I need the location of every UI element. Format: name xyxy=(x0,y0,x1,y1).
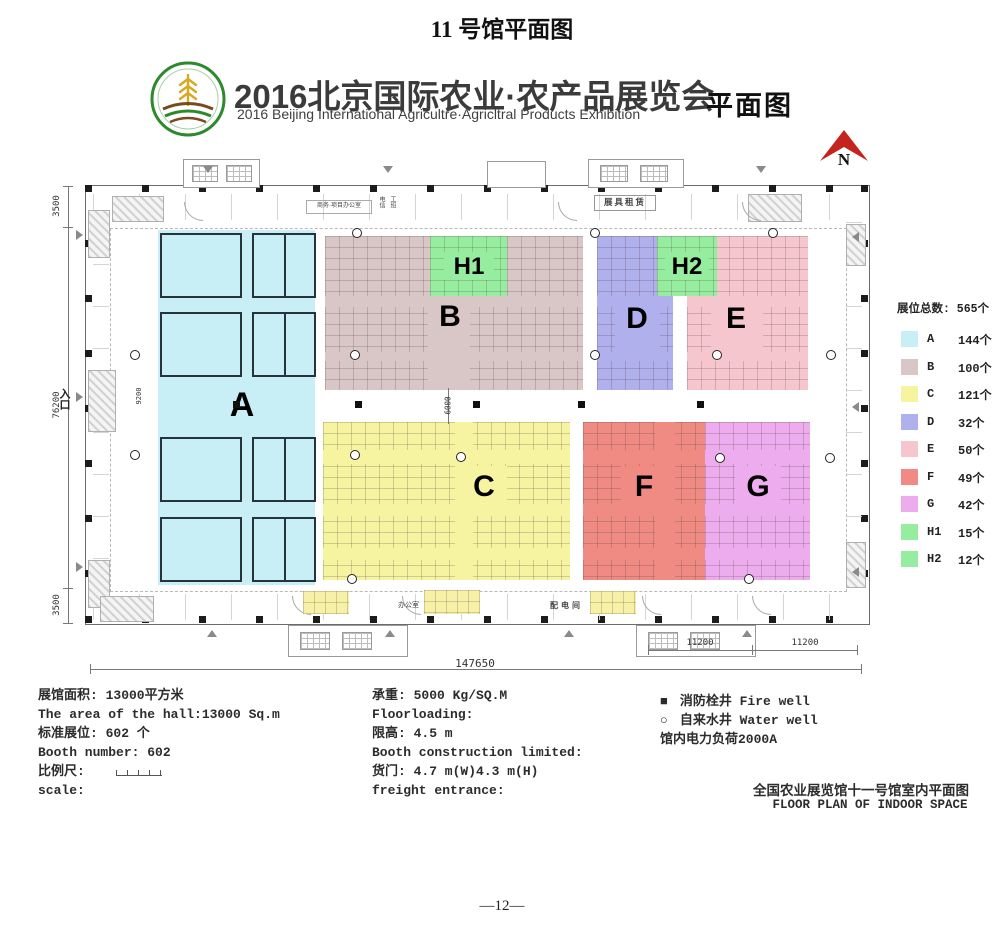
water-well-icon xyxy=(712,350,722,360)
stair-block-right-upper xyxy=(846,224,866,266)
legend-title: 展位总数: 565个 xyxy=(897,300,989,316)
legend-count: 121个 xyxy=(958,386,992,403)
water-well-symbol: ○ xyxy=(660,713,668,728)
door-marker-top-3-icon xyxy=(756,166,766,173)
legend-swatch xyxy=(901,414,918,430)
dim-tick xyxy=(63,588,73,589)
legend-swatch xyxy=(901,551,918,567)
dim-entry-bay: 9200 xyxy=(135,379,143,413)
water-well-icon xyxy=(350,350,360,360)
dim-tick xyxy=(752,645,753,655)
zone-H1-label: H1 xyxy=(449,255,489,279)
room-workroom-label: 工班 xyxy=(388,196,397,208)
dim-tick xyxy=(857,645,858,655)
zone-H2-label: H2 xyxy=(667,255,707,279)
entrance-label: 入口 xyxy=(56,388,72,410)
bottom-wall-booths-2 xyxy=(424,590,480,614)
water-well-icon xyxy=(130,450,140,460)
room-booth-rental-label: 展具租赁 xyxy=(594,195,656,211)
water-well-icon xyxy=(768,228,778,238)
water-well-icon xyxy=(715,453,725,463)
header-plan-label: 平面图 xyxy=(706,84,793,123)
zone-A-label: A xyxy=(222,388,262,422)
zone-B-label: B xyxy=(430,302,470,332)
exhibition-logo xyxy=(149,60,227,138)
zone-A-island xyxy=(252,312,316,377)
legend-count: 12个 xyxy=(958,551,984,568)
zone-C-label: C xyxy=(466,472,502,502)
zone-G: G xyxy=(705,422,810,580)
stair-block-bottomleft xyxy=(100,596,154,622)
dim-left-bottom: 3500 xyxy=(52,583,62,627)
water-well-icon xyxy=(744,574,754,584)
top-bay-2 xyxy=(487,161,546,188)
page-title: 11 号馆平面图 xyxy=(352,10,652,44)
zone-A-island xyxy=(160,437,242,502)
fire-well-icon xyxy=(355,401,362,408)
door-marker-right-2-icon xyxy=(852,402,859,412)
info-line: scale: xyxy=(38,781,280,800)
info-column-3: ■消防栓井 Fire well ○自来水井 Water well 馆内电力负荷2… xyxy=(660,692,818,749)
fire-well-icon xyxy=(697,401,704,408)
info-line: freight entrance: xyxy=(372,781,583,800)
info-line: Booth construction limited: xyxy=(372,743,583,762)
room-power-label: 配电间 xyxy=(550,600,583,611)
info-line: 展馆面积: 13000平方米 xyxy=(38,686,280,705)
zone-A-island xyxy=(252,233,316,298)
top-bay-3-grid xyxy=(600,165,628,182)
water-well-icon xyxy=(456,452,466,462)
legend-item: H1 15个 xyxy=(901,523,984,541)
legend-item: A 144个 xyxy=(901,330,992,348)
door-marker-top-1-icon xyxy=(203,166,213,173)
legend-count: 50个 xyxy=(958,441,984,458)
legend-count: 144个 xyxy=(958,331,992,348)
legend-item: D 32个 xyxy=(901,413,984,431)
room-telecom-label: 电信 xyxy=(377,196,386,208)
water-well-icon xyxy=(350,450,360,460)
dim-bay2: 11200 xyxy=(770,638,840,648)
legend-count: 32个 xyxy=(958,414,984,431)
legend-swatch xyxy=(901,331,918,347)
zone-A-island xyxy=(160,517,242,582)
scale-bar xyxy=(116,766,162,776)
dim-tick xyxy=(63,623,73,624)
legend-zone: E xyxy=(927,442,949,456)
door-marker-right-1-icon xyxy=(852,232,859,242)
zone-F-label: F xyxy=(627,472,661,502)
water-well-icon xyxy=(590,228,600,238)
legend-swatch xyxy=(901,524,918,540)
legend-swatch xyxy=(901,496,918,512)
zone-G-label: G xyxy=(741,472,775,502)
dim-tick xyxy=(861,664,862,674)
water-well-icon xyxy=(130,350,140,360)
power-note: 馆内电力负荷2000A xyxy=(660,730,818,749)
door-marker-bottom-2-icon xyxy=(385,630,395,637)
info-line: The area of the hall:13000 Sq.m xyxy=(38,705,280,724)
legend-count: 49个 xyxy=(958,469,984,486)
legend-item: E 50个 xyxy=(901,440,984,458)
legend-swatch xyxy=(901,469,918,485)
door-marker-left-1-icon xyxy=(76,230,83,240)
footer-title-cn: 全国农业展览馆十一号馆室内平面图 xyxy=(753,779,969,799)
legend-item: F 49个 xyxy=(901,468,984,486)
legend-swatch xyxy=(901,441,918,457)
legend-item: G 42个 xyxy=(901,495,984,513)
info-line: Floorloading: xyxy=(372,705,583,724)
legend-item: H2 12个 xyxy=(901,550,984,568)
info-line: 承重: 5000 Kg/SQ.M xyxy=(372,686,583,705)
room-office-label: 办公室 xyxy=(398,600,419,610)
legend-zone: G xyxy=(927,497,949,511)
zone-C: C xyxy=(323,422,570,580)
zone-A-island xyxy=(252,517,316,582)
room-office-suite-label: 商务·项目办公室 xyxy=(306,200,372,214)
dim-center-aisle: 6000 xyxy=(444,391,453,421)
page-number: —12— xyxy=(437,898,567,915)
floor-plan-page: 11 号馆平面图 2016北京国际农业·农产品展览会 2016 Beijing … xyxy=(0,0,1005,934)
entrance-vestibule xyxy=(88,370,116,432)
fire-well-label: 消防栓井 Fire well xyxy=(680,694,810,709)
fire-well-icon xyxy=(578,401,585,408)
legend-zone: C xyxy=(927,387,949,401)
dim-line-bays xyxy=(648,650,858,651)
info-column-1: 展馆面积: 13000平方米 The area of the hall:1300… xyxy=(38,686,280,800)
water-well-icon xyxy=(826,350,836,360)
legend-zone: H1 xyxy=(927,525,949,539)
fire-well-legend: ■消防栓井 Fire well xyxy=(660,692,818,711)
dim-tick xyxy=(63,186,73,187)
zone-E-label: E xyxy=(718,304,754,334)
stair-block-left-upper xyxy=(88,210,110,258)
north-arrow: N xyxy=(818,128,870,174)
legend-count: 42个 xyxy=(958,496,984,513)
water-well-label: 自来水井 Water well xyxy=(680,713,818,728)
zone-H1: H1 xyxy=(430,236,507,296)
door-marker-right-3-icon xyxy=(852,567,859,577)
bottom-wall-booths-3 xyxy=(590,591,636,614)
door-marker-left-3-icon xyxy=(76,562,83,572)
legend-count: 15个 xyxy=(958,524,984,541)
info-line: 标准展位: 602 个 xyxy=(38,724,280,743)
logo-wheat-icon xyxy=(149,60,227,138)
dim-tick xyxy=(90,664,91,674)
zone-D-label: D xyxy=(619,304,655,334)
info-column-2: 承重: 5000 Kg/SQ.M Floorloading: 限高: 4.5 m… xyxy=(372,686,583,800)
dim-bay1: 11200 xyxy=(665,638,735,648)
legend-item: B 100个 xyxy=(901,358,992,376)
legend-item: C 121个 xyxy=(901,385,992,403)
legend-zone: F xyxy=(927,470,949,484)
legend-swatch xyxy=(901,359,918,375)
fire-well-icon xyxy=(473,401,480,408)
zone-A-island xyxy=(160,233,242,298)
header-title-en: 2016 Beijing International Agricultre·Ag… xyxy=(237,106,640,122)
zone-H2: H2 xyxy=(657,236,717,296)
water-well-icon xyxy=(590,350,600,360)
legend-swatch xyxy=(901,386,918,402)
door-marker-bottom-3-icon xyxy=(564,630,574,637)
info-line: Booth number: 602 xyxy=(38,743,280,762)
water-well-legend: ○自来水井 Water well xyxy=(660,711,818,730)
door-marker-bottom-4-icon xyxy=(742,630,752,637)
dim-tick xyxy=(63,227,73,228)
legend-count: 100个 xyxy=(958,359,992,376)
top-bay-3-grid2 xyxy=(640,165,668,182)
stair-block-topleft xyxy=(112,196,164,222)
legend-zone: H2 xyxy=(927,552,949,566)
door-marker-left-2-icon xyxy=(76,392,83,402)
dim-left-top: 3500 xyxy=(52,184,62,228)
dim-tick xyxy=(648,645,649,655)
door-marker-top-2-icon xyxy=(383,166,393,173)
legend-zone: D xyxy=(927,415,949,429)
legend-zone: B xyxy=(927,360,949,374)
scale-bar-ticks xyxy=(116,770,162,775)
top-bay-1-grid2 xyxy=(226,165,252,182)
stair-block-right-lower xyxy=(846,542,866,588)
fire-well-symbol: ■ xyxy=(660,694,668,709)
info-line: 货门: 4.7 m(W)4.3 m(H) xyxy=(372,762,583,781)
footer-title-en: FLOOR PLAN OF INDOOR SPACE xyxy=(753,798,987,812)
bottom-bay-1-grid2 xyxy=(342,632,372,650)
zone-A-island xyxy=(160,312,242,377)
water-well-icon xyxy=(352,228,362,238)
water-well-icon xyxy=(825,453,835,463)
dim-total: 147650 xyxy=(415,657,535,670)
info-line: 限高: 4.5 m xyxy=(372,724,583,743)
north-label: N xyxy=(818,150,870,170)
zone-A-island xyxy=(252,437,316,502)
water-well-icon xyxy=(347,574,357,584)
fire-well-icon xyxy=(233,401,240,408)
door-marker-bottom-1-icon xyxy=(207,630,217,637)
bottom-bay-1-grid xyxy=(300,632,330,650)
bottom-wall-booths-1 xyxy=(303,591,349,614)
legend-zone: A xyxy=(927,332,949,346)
zone-F: F xyxy=(583,422,705,580)
